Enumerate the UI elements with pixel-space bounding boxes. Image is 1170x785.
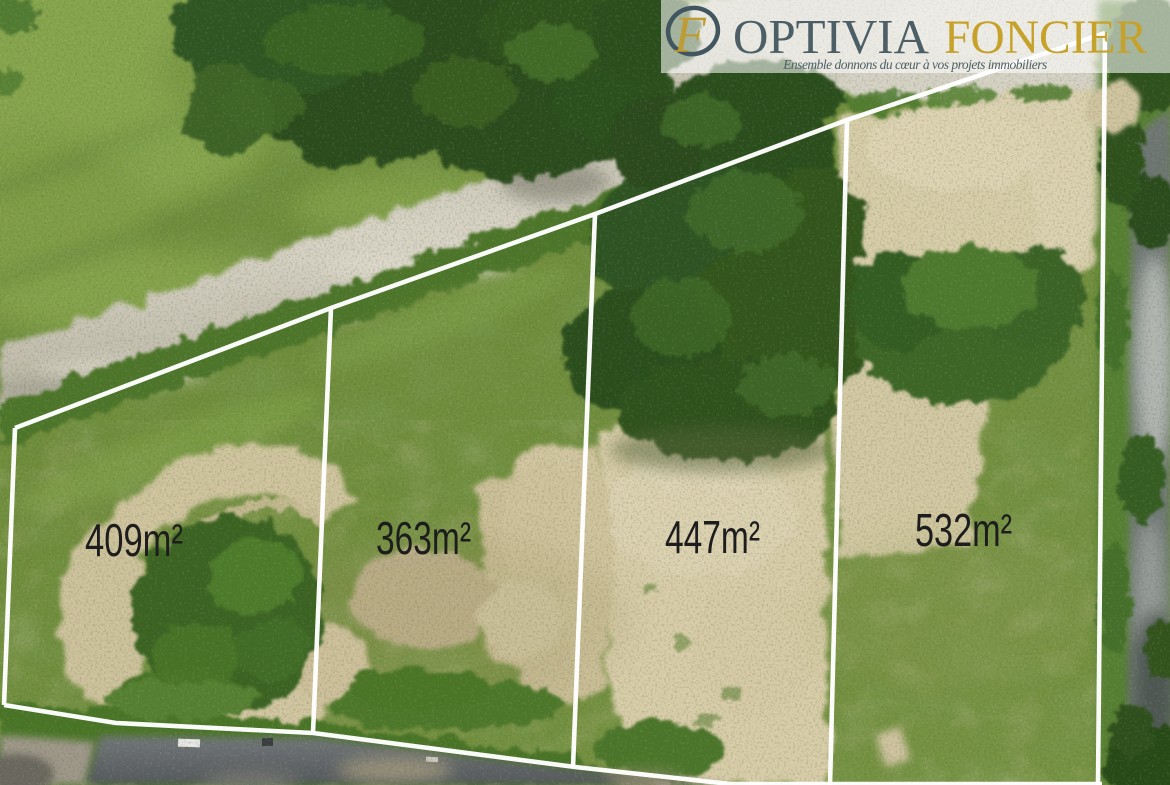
svg-text:409m²: 409m² xyxy=(85,514,183,566)
svg-text:OPTIVIA: OPTIVIA xyxy=(733,9,930,64)
svg-text:F: F xyxy=(673,7,707,64)
svg-text:363m²: 363m² xyxy=(376,512,471,564)
svg-text:447m²: 447m² xyxy=(665,511,760,563)
svg-text:532m²: 532m² xyxy=(915,504,1012,556)
svg-text:Ensemble donnons du cœur à vos: Ensemble donnons du cœur à vos projets i… xyxy=(782,57,1047,72)
